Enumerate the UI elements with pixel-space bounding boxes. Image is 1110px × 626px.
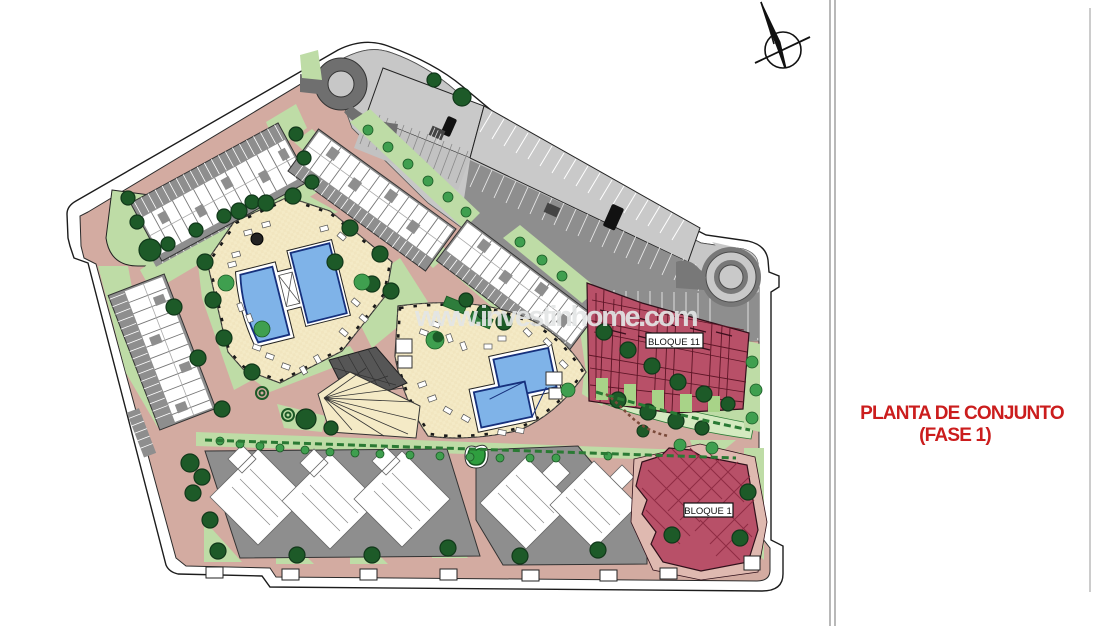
svg-text:(FASE 1): (FASE 1) (919, 425, 991, 446)
svg-text:BLOQUE 1: BLOQUE 1 (684, 506, 732, 517)
svg-text:www.investinhome.com: www.investinhome.com (414, 301, 697, 333)
svg-text:PLANTA DE CONJUNTO: PLANTA DE CONJUNTO (860, 403, 1064, 424)
svg-text:BLOQUE 11: BLOQUE 11 (648, 337, 700, 348)
